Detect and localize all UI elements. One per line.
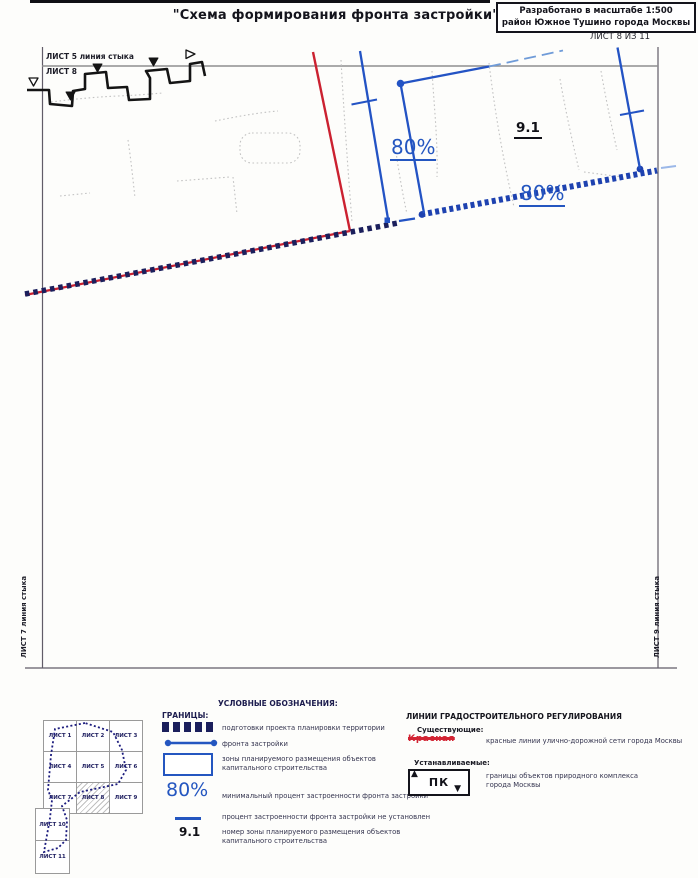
percent-not-set-symbol bbox=[175, 817, 201, 820]
index-boundary-overlay bbox=[35, 716, 157, 876]
min-percent-symbol: 80% bbox=[166, 779, 208, 801]
pk-boundary-symbol: ▲ ПК ▼ bbox=[408, 769, 470, 796]
legend-existing-header: Существующие: bbox=[417, 726, 483, 734]
red-lines bbox=[25, 52, 350, 295]
pk-boundary-label: границы объектов природного комплекса го… bbox=[486, 772, 646, 790]
legend-established-header: Устанавливаемые: bbox=[414, 759, 490, 767]
zone-number-label: номер зоны планируемого размещения объек… bbox=[222, 828, 432, 846]
sheet-index-map: ЛИСТ 1ЛИСТ 2ЛИСТ 3ЛИСТ 4ЛИСТ 5ЛИСТ 6ЛИСТ… bbox=[35, 716, 157, 876]
zone-rect-label: зоны планируемого размещения объектов ка… bbox=[222, 755, 422, 773]
edge-label-sheet5: ЛИСТ 5 линия стыка bbox=[46, 52, 134, 61]
legend-boundaries-header: ГРАНИЦЫ: bbox=[162, 711, 208, 720]
edge-label-sheet7: ЛИСТ 7 линия стыка bbox=[20, 576, 28, 658]
legend-title: УСЛОВНЫЕ ОБОЗНАЧЕНИЯ: bbox=[218, 699, 338, 708]
edge-label-sheet9: ЛИСТ 9 линия стыка bbox=[653, 576, 661, 658]
min-percent-annotation-left: 80% bbox=[390, 137, 436, 161]
zone-rect-symbol bbox=[163, 753, 213, 776]
triangle-down-icon: ▼ bbox=[454, 785, 462, 794]
scanned-map-sheet: "Схема формирования фронта застройки" Ра… bbox=[0, 0, 698, 878]
percent-not-set-label: процент застроенности фронта застройки н… bbox=[222, 813, 472, 822]
front-line-symbol bbox=[162, 738, 220, 748]
min-percent-annotation-right: 80% bbox=[519, 183, 565, 207]
red-line-symbol: Красная bbox=[408, 734, 455, 744]
triangle-up-icon: ▲ bbox=[411, 770, 419, 779]
legend-regulation-header: ЛИНИИ ГРАДОСТРОИТЕЛЬНОГО РЕГУЛИРОВАНИЯ bbox=[406, 712, 622, 721]
ppt-boundary-symbol bbox=[162, 722, 213, 732]
pk-symbol-text: ПК bbox=[429, 776, 449, 789]
zone-number-symbol: 9.1 bbox=[179, 825, 200, 839]
map-frame bbox=[25, 47, 677, 668]
edge-label-sheet8: ЛИСТ 8 bbox=[46, 67, 77, 76]
zone-number-annotation: 9.1 bbox=[514, 120, 542, 139]
red-line-label: красные линии улично-дорожной сети город… bbox=[486, 737, 686, 746]
